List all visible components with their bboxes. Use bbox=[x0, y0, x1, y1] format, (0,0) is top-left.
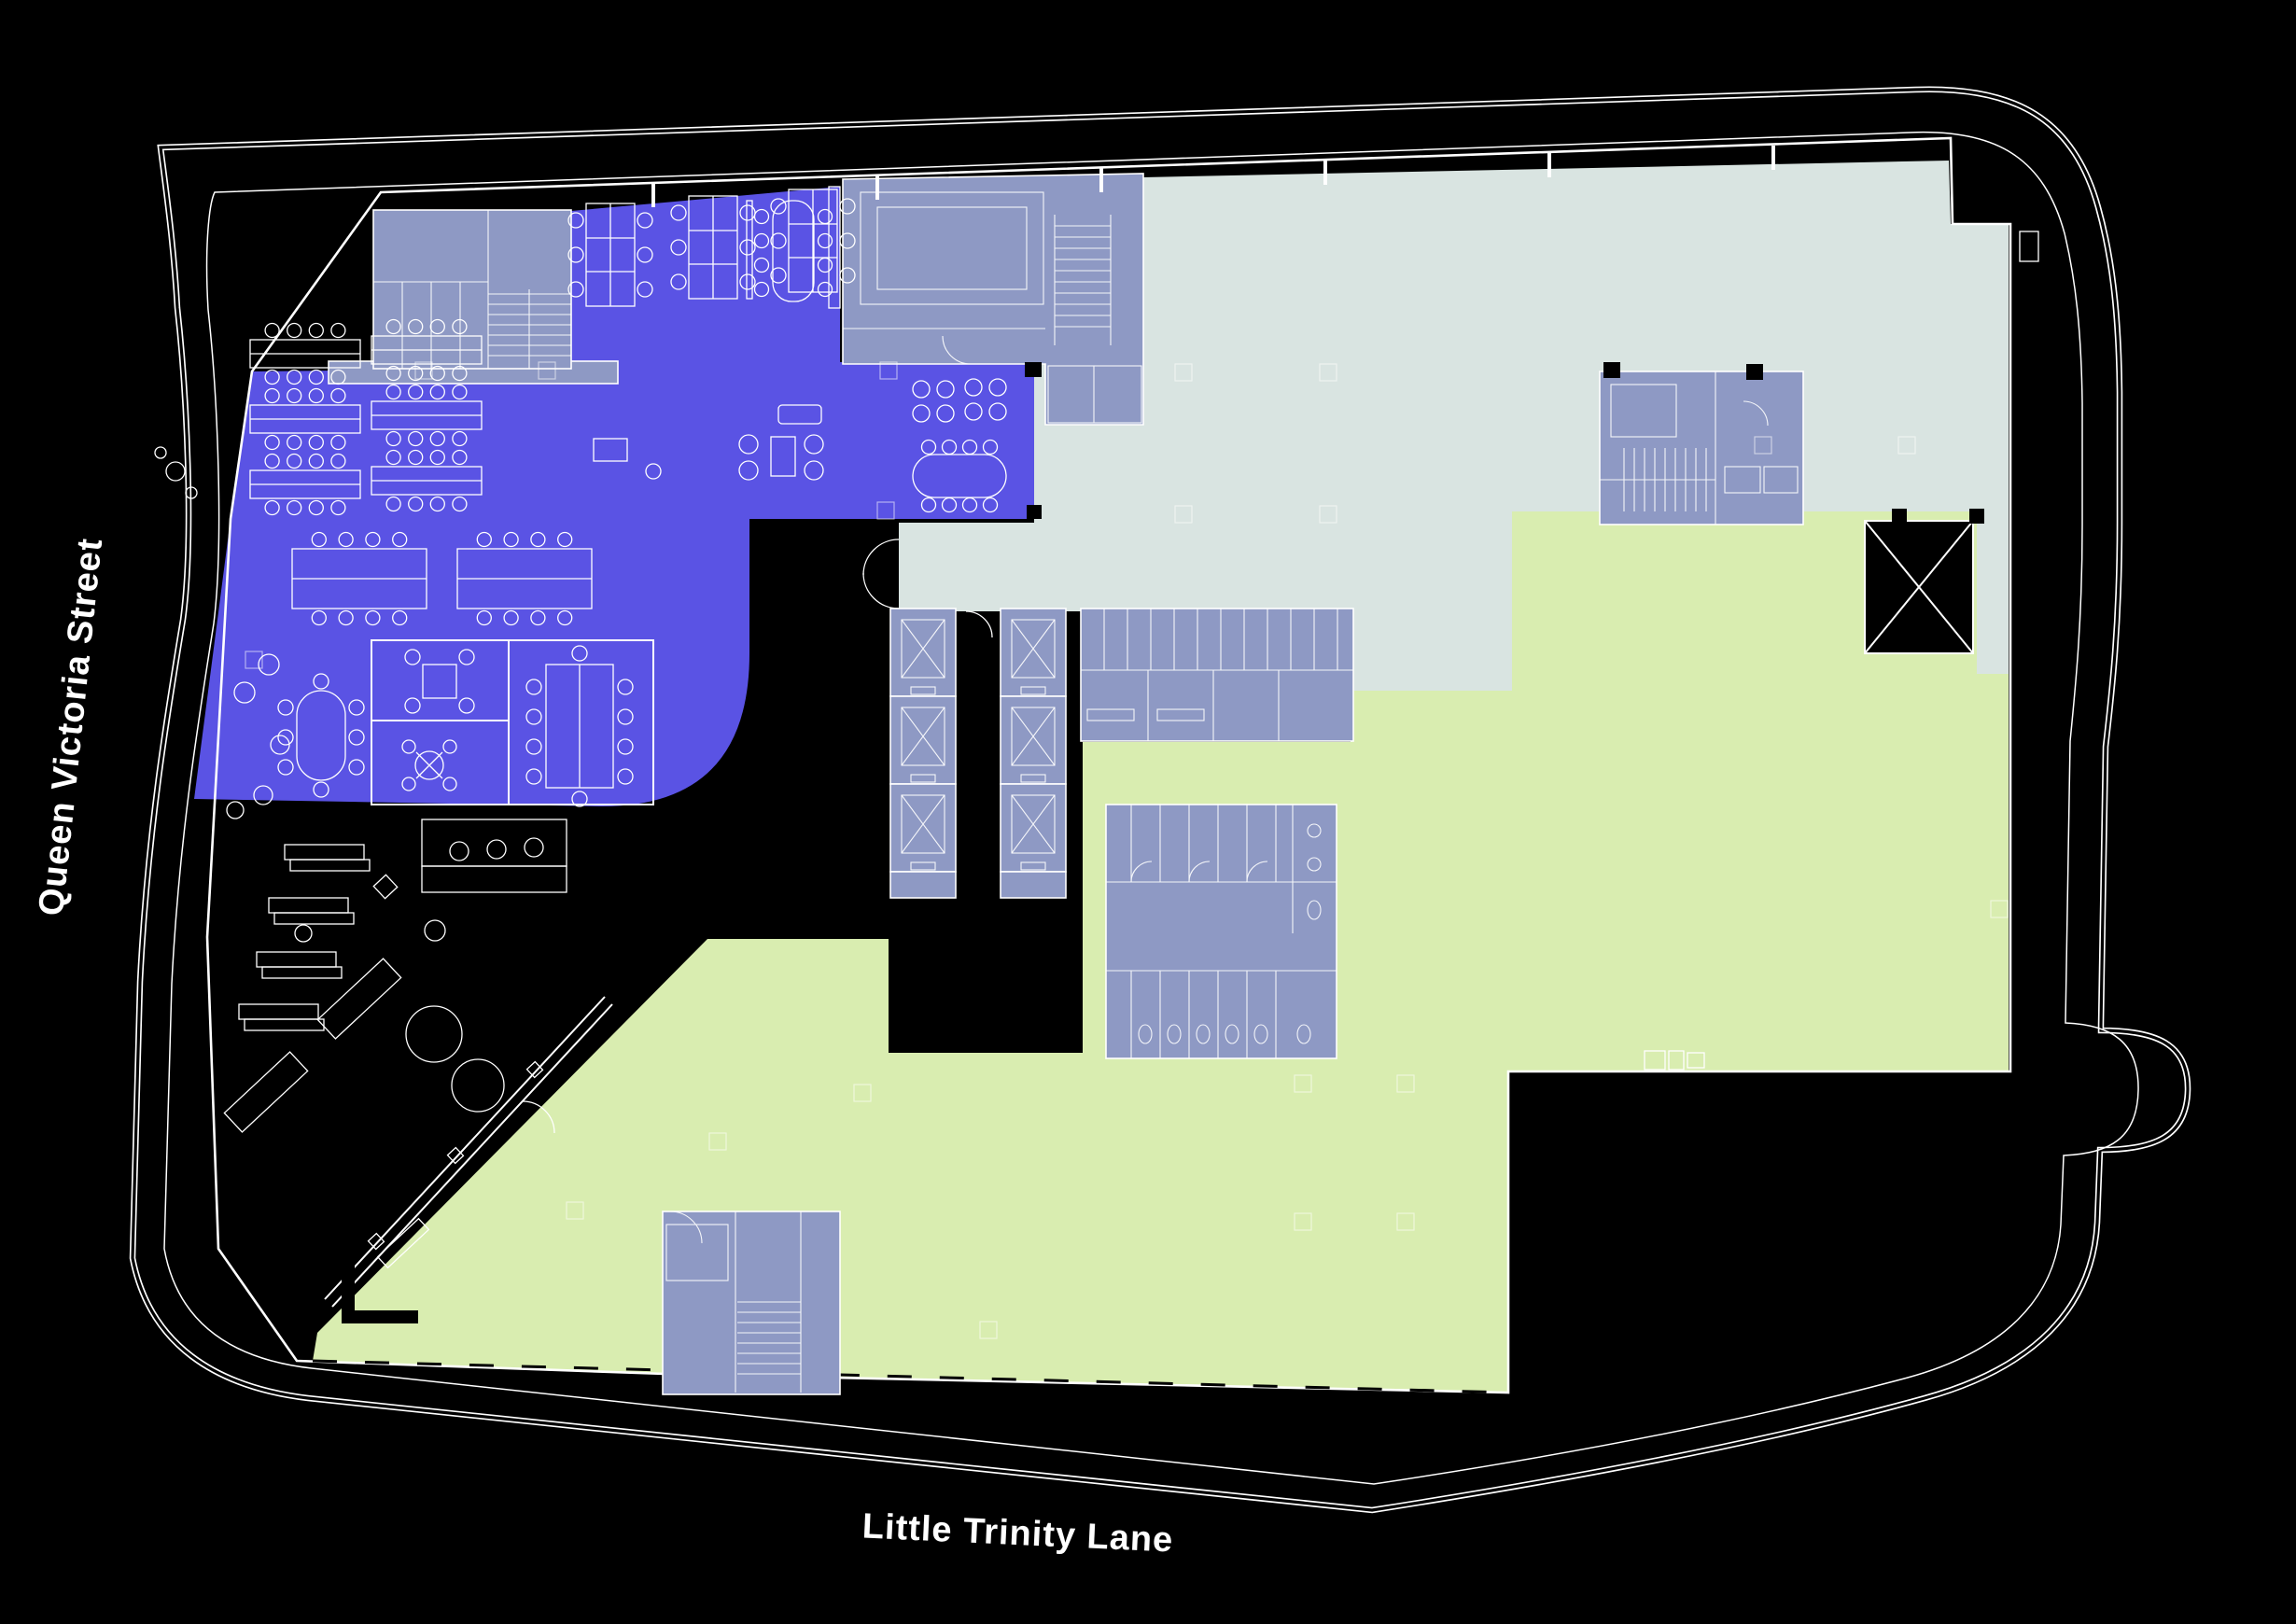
chair bbox=[309, 324, 323, 338]
chair bbox=[227, 802, 244, 819]
lobby-bench bbox=[239, 1004, 318, 1019]
chair bbox=[287, 324, 301, 338]
planter bbox=[452, 1059, 504, 1112]
chair bbox=[331, 324, 345, 338]
reception-counter bbox=[422, 866, 567, 892]
lobby-bench bbox=[269, 898, 348, 913]
core-lockers bbox=[1081, 609, 1353, 741]
chair bbox=[155, 447, 166, 458]
chair bbox=[166, 462, 185, 481]
lobby-bench bbox=[274, 913, 354, 924]
mullion bbox=[448, 1148, 464, 1164]
lobby-bench bbox=[262, 967, 342, 978]
core-e-body bbox=[1600, 371, 1803, 525]
core-s-body bbox=[663, 1211, 840, 1394]
lift-cell bbox=[890, 784, 956, 872]
stool bbox=[425, 920, 445, 941]
lobby-bench bbox=[245, 1019, 324, 1030]
lift-lobby bbox=[1001, 872, 1066, 898]
lift-cell bbox=[1001, 696, 1066, 784]
chair bbox=[450, 842, 469, 861]
street-label-little-trinity: Little Trinity Lane bbox=[861, 1506, 1174, 1560]
lobby-bench bbox=[285, 845, 364, 860]
mullion bbox=[527, 1062, 543, 1078]
core-lockers-body bbox=[1081, 609, 1353, 741]
core-south-stair bbox=[663, 1211, 840, 1394]
shaft-x-box bbox=[1865, 521, 1973, 653]
lobby-bench bbox=[290, 860, 370, 871]
lift-banks bbox=[890, 609, 1066, 898]
chair bbox=[265, 324, 279, 338]
lift-cell bbox=[890, 696, 956, 784]
core-wc-suite bbox=[1106, 805, 1337, 1058]
reception-desk bbox=[422, 819, 567, 866]
stool bbox=[295, 925, 312, 942]
core-wc-body bbox=[1106, 805, 1337, 1058]
angled-bench bbox=[224, 1052, 307, 1132]
chair bbox=[487, 840, 506, 859]
mullion bbox=[369, 1234, 385, 1250]
core-east-stair bbox=[1600, 371, 1803, 525]
street-label-queen-victoria: Queen Victoria Street bbox=[32, 536, 110, 917]
floor-plan: Queen Victoria Street Little Trinity Lan… bbox=[0, 0, 2296, 1624]
external-plant-box bbox=[2020, 231, 2038, 261]
lift-lobby bbox=[890, 872, 956, 898]
lift-cell bbox=[890, 609, 956, 696]
lift-cell bbox=[1001, 784, 1066, 872]
planter bbox=[406, 1006, 462, 1062]
angled-bench bbox=[317, 959, 400, 1039]
angled-plinth bbox=[373, 875, 397, 898]
lift-cell bbox=[1001, 609, 1066, 696]
chair bbox=[525, 838, 543, 857]
lobby-bench bbox=[257, 952, 336, 967]
